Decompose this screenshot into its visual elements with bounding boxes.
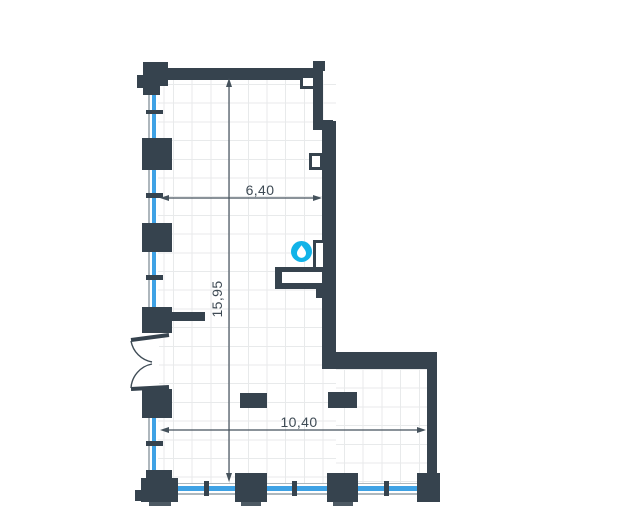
pillar-bottom-left-under-tab	[149, 502, 171, 506]
window-tick-left-4	[146, 441, 163, 446]
window-tick-bottom-3	[384, 481, 389, 496]
plumbing-shaft-hole	[282, 272, 322, 283]
wall-top-right-step	[313, 61, 325, 71]
pillar-corner-top-left-tab	[137, 75, 143, 88]
pillar-corner-bottom-left	[141, 478, 178, 502]
wall-right-main	[322, 121, 336, 369]
pillar-corner-bottom-right	[417, 473, 440, 502]
column-1	[240, 393, 267, 408]
pillar-left-2	[142, 138, 172, 170]
wall-stub-pillar-4	[172, 312, 205, 321]
pillar-bottom-2-under-tab	[241, 502, 261, 506]
vent-notch-top-hole	[303, 78, 313, 86]
pillar-corner-top-left	[143, 62, 168, 86]
floor-plan: 6,40 15,95 10,40	[0, 0, 624, 519]
vent-notch-right-hole	[312, 156, 320, 167]
wall-lower-horizontal	[322, 352, 437, 369]
exterior-area	[336, 80, 446, 352]
plumbing-duct-stub	[313, 240, 323, 268]
vent-notch-top	[300, 76, 316, 89]
dimension-label-top-width: 6,40	[233, 182, 287, 198]
dimension-label-bottom-width: 10,40	[272, 414, 326, 430]
vent-notch-right	[309, 153, 323, 170]
pillar-bottom-2	[235, 473, 267, 502]
column-2	[328, 392, 357, 408]
window-tick-bottom-2	[292, 481, 297, 496]
door-opening	[143, 333, 159, 388]
dimension-label-left-height: 15,95	[209, 269, 225, 329]
wall-top	[148, 68, 323, 80]
pillar-corner-top-left-foot	[143, 84, 160, 95]
pillar-bottom-3-under-tab	[333, 502, 353, 506]
pillar-corner-bottom-left-tab	[135, 490, 141, 501]
window-tick-left-2	[146, 193, 163, 198]
window-tick-left-1	[146, 110, 163, 114]
window-tick-bottom-1	[204, 481, 209, 496]
plumbing-shaft	[275, 267, 328, 289]
window-tick-left-3	[146, 275, 163, 280]
floor-extension	[336, 369, 427, 483]
pillar-left-4	[142, 307, 172, 333]
wall-right-lower	[427, 352, 437, 476]
pillar-left-5	[142, 389, 172, 418]
pillar-left-3	[142, 223, 172, 252]
pillar-bottom-3	[327, 473, 358, 502]
